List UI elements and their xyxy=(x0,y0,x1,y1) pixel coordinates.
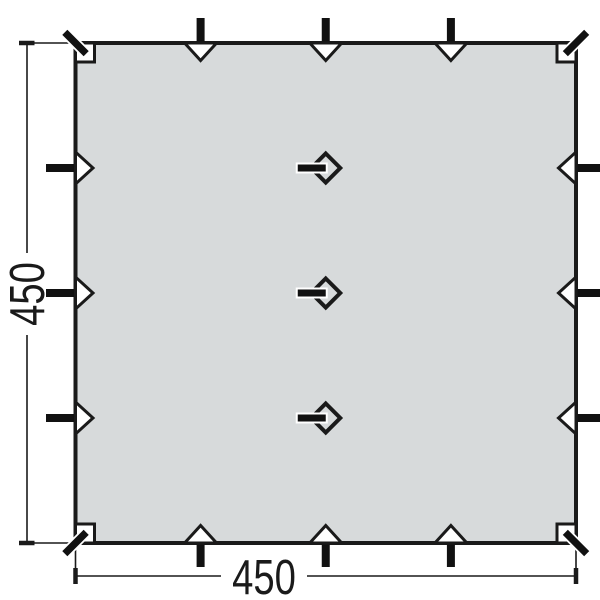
loop-tab-icon xyxy=(575,414,600,422)
height-dimension-label: 450 xyxy=(1,262,56,326)
loop-tab-icon xyxy=(575,164,600,172)
attachment-tab-icon xyxy=(297,414,327,423)
attachment-tab-icon xyxy=(297,289,327,298)
loop-tab-icon xyxy=(46,164,76,172)
loop-tab-icon xyxy=(322,18,330,44)
loop-tab-icon xyxy=(322,542,330,567)
loop-tab-icon xyxy=(46,414,76,422)
loop-tab-icon xyxy=(197,18,205,44)
tarp-diagram-page: 450 450 xyxy=(0,0,600,600)
loop-tab-icon xyxy=(447,18,455,44)
loop-tab-icon xyxy=(447,542,455,567)
attachment-tab-icon xyxy=(297,164,327,173)
loop-tab-icon xyxy=(197,542,205,567)
tarp-diagram: 450 450 xyxy=(0,0,600,600)
width-dimension-label: 450 xyxy=(232,551,296,600)
loop-tab-icon xyxy=(575,289,600,297)
